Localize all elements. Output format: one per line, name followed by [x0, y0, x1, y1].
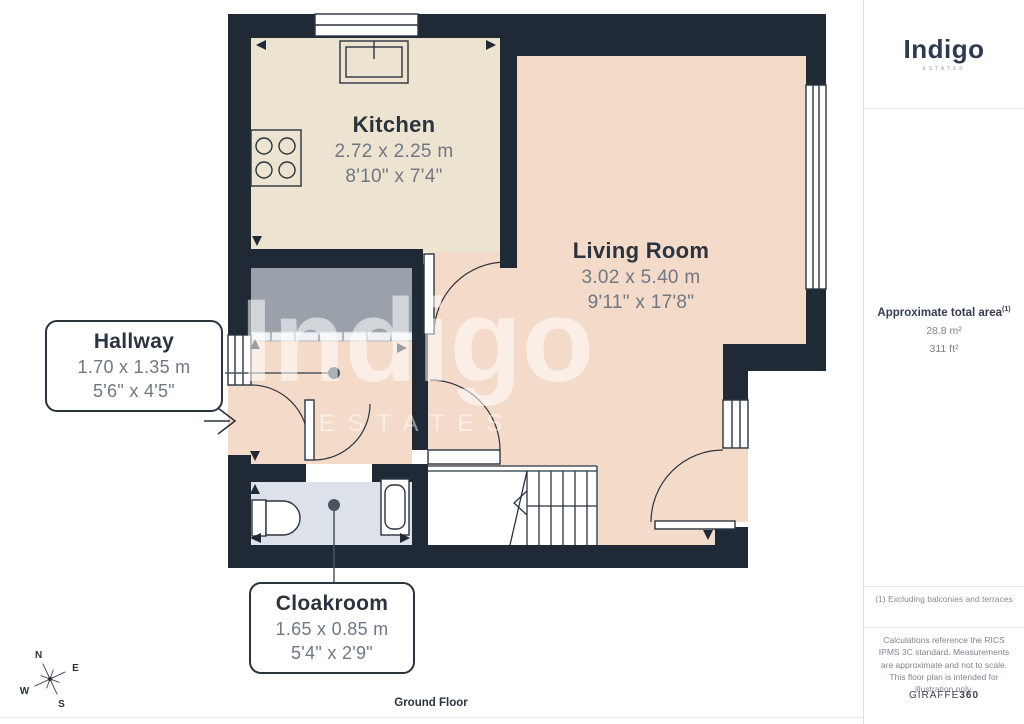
total-area-metric: 28.8 m² [864, 325, 1024, 337]
disclaimer-text: Calculations reference the RICS IPMS 3C … [876, 634, 1012, 696]
agency-logo-name: Indigo [864, 34, 1024, 65]
entrance-threshold [228, 385, 251, 457]
room-dim-metric: 1.65 x 0.85 m [255, 619, 409, 640]
kitchen-floor [251, 38, 500, 252]
wall-right-mid [806, 289, 826, 344]
wall-step [723, 344, 826, 371]
sidebar-divider [864, 108, 1024, 109]
giraffe360-suffix: 360 [959, 690, 979, 701]
agency-logo-sub: ESTATES [864, 66, 1024, 72]
hall-living-connector-floor [428, 252, 517, 470]
toilet [252, 500, 300, 536]
wall-cloak-right [412, 464, 428, 545]
compass-icon: N E S W [5, 633, 95, 723]
living-room-window [806, 85, 826, 289]
compass-west: W [20, 686, 30, 697]
basin [381, 479, 409, 535]
floor-title: Ground Floor [331, 697, 531, 709]
hallway-leader-dot [328, 367, 340, 379]
living-room-floor-upper [517, 56, 806, 344]
wall-bottom-right-stub [715, 527, 748, 568]
hallway-closet [231, 268, 414, 341]
giraffe360-name: GIRAFFE [909, 690, 959, 701]
agency-logo: Indigo ESTATES [864, 34, 1024, 72]
total-area-block: Approximate total area(1) 28.8 m² 311 ft… [864, 306, 1024, 355]
floorplan-page: Indigo ESTATES Kitchen 2.72 x 2.25 m 8'1… [0, 0, 1024, 724]
total-area-imperial: 311 ft² [864, 343, 1024, 355]
cloakroom-leader-dot [328, 499, 340, 511]
compass-north: N [35, 650, 42, 661]
giraffe360-brand: GIRAFFE360 [864, 690, 1024, 701]
wall-right-top [806, 14, 826, 85]
wall-below-step [723, 371, 748, 402]
total-area-title: Approximate total area(1) [864, 306, 1024, 319]
wall-kitchen-living [500, 38, 517, 268]
closet-rail [251, 332, 414, 341]
compass-east: E [72, 663, 79, 674]
wall-cloak-top-left [251, 464, 306, 482]
sidebar: Indigo ESTATES Approximate total area(1)… [863, 0, 1024, 724]
sidebar-divider [864, 586, 1024, 587]
living-room-window-lower [723, 400, 748, 448]
compass-south: S [58, 699, 65, 710]
total-area-note-ref: (1) [1002, 306, 1011, 313]
wall-top-living [517, 36, 826, 56]
room-dim-metric: 1.70 x 1.35 m [51, 357, 217, 378]
staircase [426, 466, 597, 545]
total-area-title-text: Approximate total area [877, 307, 1002, 319]
room-name: Cloakroom [255, 592, 409, 616]
room-dim-imperial: 5'6" x 4'5" [51, 381, 217, 402]
hallway-floor [251, 340, 412, 464]
cloakroom-label-box: Cloakroom 1.65 x 0.85 m 5'4" x 2'9" [249, 582, 415, 674]
kitchen-window [315, 14, 418, 36]
room-name: Hallway [51, 330, 217, 354]
sidebar-divider [864, 627, 1024, 628]
wall-bottom [228, 545, 717, 568]
wall-kitchen-bottom [251, 249, 423, 268]
closet-area [251, 268, 414, 332]
wall-left-upper [228, 14, 251, 335]
room-dim-imperial: 5'4" x 2'9" [255, 643, 409, 664]
hallway-label-box: Hallway 1.70 x 1.35 m 5'6" x 4'5" [45, 320, 223, 412]
area-footnote: (1) Excluding balconies and terraces [864, 594, 1024, 604]
